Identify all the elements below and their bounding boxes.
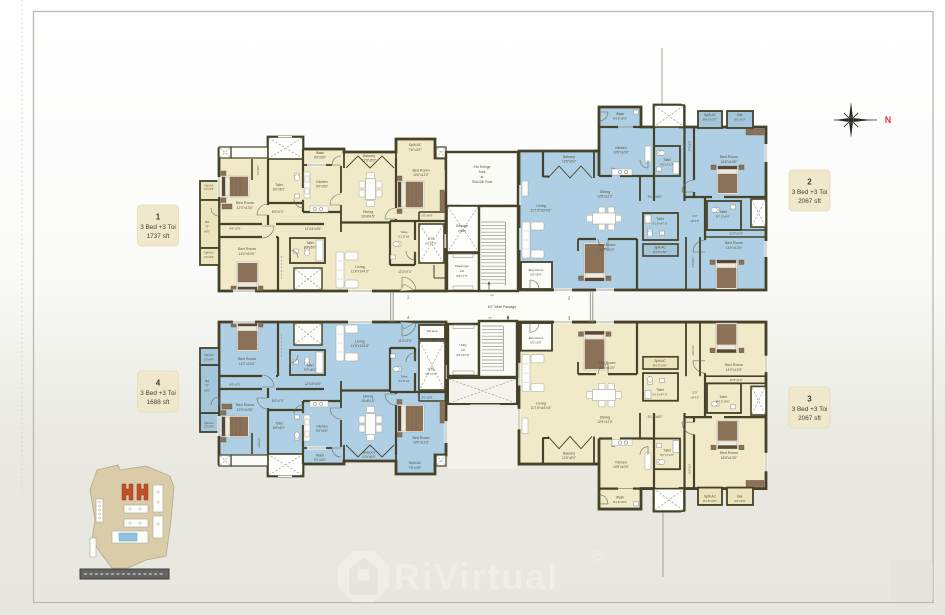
svg-text:Toilet: Toilet <box>719 395 727 399</box>
svg-text:Toilet: Toilet <box>663 448 671 452</box>
svg-text:Living: Living <box>536 204 545 208</box>
svg-text:12'9"x5'0": 12'9"x5'0" <box>562 456 576 460</box>
svg-text:9'0"x3'0": 9'0"x3'0" <box>314 458 326 462</box>
svg-text:Balcony: Balcony <box>363 154 375 158</box>
svg-text:Bed Room: Bed Room <box>238 247 256 251</box>
svg-text:9'0"x9'0": 9'0"x9'0" <box>316 185 328 189</box>
svg-text:Toilet: Toilet <box>663 158 671 162</box>
svg-text:8'4.5"x3'0": 8'4.5"x3'0" <box>703 118 717 122</box>
svg-text:12'4.5"x4'0": 12'4.5"x4'0" <box>305 227 322 231</box>
svg-text:Bar: Bar <box>737 113 743 117</box>
svg-text:12'0"x10'0": 12'0"x10'0" <box>599 248 615 252</box>
svg-text:2'0"x6'0": 2'0"x6'0" <box>691 257 695 268</box>
svg-text:12'0"x13'0": 12'0"x13'0" <box>237 206 255 210</box>
svg-text:4: 4 <box>156 379 161 388</box>
svg-text:8'7.5"x6'0": 8'7.5"x6'0" <box>716 215 730 219</box>
svg-text:12'0"x13'0": 12'0"x13'0" <box>237 408 255 412</box>
svg-text:Toilet: Toilet <box>656 388 664 392</box>
svg-text:Bed Room: Bed Room <box>236 201 254 205</box>
svg-text:14'0"x12'0": 14'0"x12'0" <box>726 246 744 250</box>
svg-text:3: 3 <box>807 395 812 404</box>
svg-text:x6'4.5": x6'4.5" <box>691 219 700 223</box>
svg-text:N: N <box>885 115 892 125</box>
svg-text:Elec.Room: Elec.Room <box>529 336 544 340</box>
svg-text:Split AC: Split AC <box>654 359 666 363</box>
svg-text:Lift: Lift <box>460 269 464 273</box>
svg-text:Bed Room: Bed Room <box>238 357 256 361</box>
svg-text:6'9"x7'3": 6'9"x7'3" <box>456 274 467 278</box>
svg-text:6'0"x7'3.5": 6'0"x7'3.5" <box>660 453 674 457</box>
svg-text:Fire Refuge: Fire Refuge <box>474 165 491 169</box>
svg-text:2'3"x4'9": 2'3"x4'9" <box>204 425 214 429</box>
svg-text:Bed Room: Bed Room <box>725 241 743 245</box>
svg-text:8'7.5"x6'0": 8'7.5"x6'0" <box>716 400 730 404</box>
svg-text:©: © <box>592 548 605 567</box>
svg-text:Split AC: Split AC <box>204 421 213 425</box>
svg-text:Toilet: Toilet <box>719 210 727 214</box>
svg-text:2'0"x6'0": 2'0"x6'0" <box>421 396 432 400</box>
svg-text:10'9"x10'0": 10'9"x10'0" <box>613 465 629 469</box>
svg-text:1: 1 <box>156 213 161 222</box>
svg-text:9'3"x5'0": 9'3"x5'0" <box>304 246 316 250</box>
svg-text:3'0": 3'0" <box>693 214 698 218</box>
svg-text:2'0"x6'0": 2'0"x6'0" <box>256 165 260 175</box>
svg-text:Toilet: Toilet <box>275 183 283 187</box>
svg-text:11'8"x14'4.5": 11'8"x14'4.5" <box>351 344 369 348</box>
svg-text:8'4.5"x3'0": 8'4.5"x3'0" <box>653 250 667 254</box>
svg-text:10'x8'4.5": 10'x8'4.5" <box>361 399 375 403</box>
svg-text:Elec.Room: Elec.Room <box>529 268 544 272</box>
svg-text:9'1.5"x5'0": 9'1.5"x5'0" <box>648 195 663 199</box>
svg-text:2: 2 <box>807 178 812 187</box>
svg-text:x6'0": x6'0" <box>204 230 210 234</box>
svg-text:12'9"x5'0": 12'9"x5'0" <box>562 160 576 164</box>
svg-text:9'1.5"x5'0": 9'1.5"x5'0" <box>648 415 663 419</box>
svg-text:Wet Area: Wet Area <box>427 329 438 333</box>
svg-text:2'0"x6'0": 2'0"x6'0" <box>257 438 261 448</box>
svg-text:Balcony: Balcony <box>563 451 575 455</box>
svg-text:2'0"x6'0": 2'0"x6'0" <box>688 141 692 152</box>
svg-text:Area: Area <box>479 170 486 174</box>
svg-text:9'1.0"x4'7.5": 9'1.0"x4'7.5" <box>652 222 667 226</box>
svg-text:Living: Living <box>355 265 364 269</box>
svg-text:14'2"x10'0": 14'2"x10'0" <box>239 362 257 366</box>
svg-text:14'2"x10'0": 14'2"x10'0" <box>239 252 257 256</box>
svg-text:11'7.5"x16'4.5": 11'7.5"x16'4.5" <box>531 209 552 213</box>
svg-text:7'6"x3'9": 7'6"x3'9" <box>409 466 423 470</box>
svg-text:Split AC: Split AC <box>409 143 422 147</box>
svg-text:12'9"x5'0": 12'9"x5'0" <box>362 159 376 163</box>
svg-text:1737 sft: 1737 sft <box>147 233 170 240</box>
svg-text:Bed Room: Bed Room <box>236 403 254 407</box>
svg-text:8'4.5"x3'0": 8'4.5"x3'0" <box>653 363 667 367</box>
svg-text:11'7.5"x16'4.5": 11'7.5"x16'4.5" <box>531 406 552 410</box>
svg-text:2'3"x4'9": 2'3"x4'9" <box>204 255 214 259</box>
svg-text:Wash: Wash <box>316 151 324 155</box>
svg-text:14'0"x12'0": 14'0"x12'0" <box>726 368 744 372</box>
svg-text:RiVirtual: RiVirtual <box>394 556 559 597</box>
svg-text:7'6"x3'9": 7'6"x3'9" <box>409 148 423 152</box>
svg-text:Toilet: Toilet <box>306 364 314 368</box>
svg-text:Kitchen: Kitchen <box>615 146 626 150</box>
svg-text:Balcony: Balcony <box>363 451 375 455</box>
svg-text:6'0"x3'0": 6'0"x3'0" <box>734 118 745 122</box>
svg-text:7'3": 7'3" <box>205 384 209 388</box>
svg-text:11'8"x14'4.5": 11'8"x14'4.5" <box>351 270 369 274</box>
svg-text:5'1.5"x8': 5'1.5"x8' <box>398 235 410 239</box>
svg-text:Bed Room: Bed Room <box>599 361 616 365</box>
svg-text:10'9"x10'0": 10'9"x10'0" <box>613 151 629 155</box>
svg-text:Bed Room: Bed Room <box>725 363 743 367</box>
svg-text:9'1.0"x4'7.5": 9'1.0"x4'7.5" <box>652 393 667 397</box>
svg-text:9'0"x3'0": 9'0"x3'0" <box>314 156 326 160</box>
svg-text:Toilet: Toilet <box>656 217 664 221</box>
svg-text:6'0" Wide Passage: 6'0" Wide Passage <box>488 305 517 309</box>
svg-text:12'9"x2'0": 12'9"x2'0" <box>729 232 742 236</box>
svg-text:Dining: Dining <box>363 210 373 214</box>
svg-text:12'9"x5'0": 12'9"x5'0" <box>362 455 376 459</box>
svg-text:Bed Room: Bed Room <box>599 243 616 247</box>
svg-text:Balcony: Balcony <box>563 155 575 159</box>
svg-text:6'0"x7'3": 6'0"x7'3" <box>272 210 284 214</box>
svg-text:2'0"x6'0": 2'0"x6'0" <box>688 464 692 475</box>
svg-text:at: at <box>481 175 484 179</box>
svg-text:6'0"x6'0": 6'0"x6'0" <box>273 426 285 430</box>
svg-text:Toilet: Toilet <box>306 241 314 245</box>
svg-text:11'3"x7'3": 11'3"x7'3" <box>398 339 412 343</box>
svg-text:1688 sft: 1688 sft <box>147 399 170 406</box>
svg-text:Toilet: Toilet <box>400 230 407 234</box>
svg-text:5'0"x7'3": 5'0"x7'3" <box>425 372 436 376</box>
svg-text:Living: Living <box>536 401 545 405</box>
svg-text:Toilet: Toilet <box>275 422 283 426</box>
svg-text:8'4.5"x5'3": 8'4.5"x5'3" <box>613 500 627 504</box>
svg-text:Split AC: Split AC <box>704 494 717 498</box>
svg-text:6'0"x6'0": 6'0"x6'0" <box>273 188 285 192</box>
svg-text:Split AC: Split AC <box>704 113 717 117</box>
svg-text:3 Bed +3 Toi: 3 Bed +3 Toi <box>140 224 176 231</box>
svg-text:Dining: Dining <box>600 190 610 194</box>
svg-text:10'0"x12'0": 10'0"x12'0" <box>413 173 429 177</box>
svg-text:Dining: Dining <box>600 416 610 420</box>
svg-text:7'3": 7'3" <box>205 225 209 229</box>
svg-text:12'9"x2'0": 12'9"x2'0" <box>729 378 742 382</box>
svg-text:Bar: Bar <box>737 494 743 498</box>
svg-text:Garbage: Garbage <box>456 224 469 228</box>
svg-text:Passenger: Passenger <box>455 264 469 268</box>
svg-text:Living: Living <box>355 340 364 344</box>
svg-text:3 Bed +3 Toi: 3 Bed +3 Toi <box>792 189 828 196</box>
svg-text:12'9"x11'0": 12'9"x11'0" <box>597 195 612 199</box>
svg-text:Bed Room: Bed Room <box>720 451 738 455</box>
svg-text:12'4.5"x4'0": 12'4.5"x4'0" <box>305 382 322 386</box>
svg-text:9'0"x9'0": 9'0"x9'0" <box>316 429 328 433</box>
svg-text:3'0": 3'0" <box>693 391 698 395</box>
svg-text:5'1.5"x8': 5'1.5"x8' <box>398 379 410 383</box>
svg-text:Bed Room: Bed Room <box>413 169 430 173</box>
svg-text:6'0"x7'3": 6'0"x7'3" <box>272 399 284 403</box>
svg-text:Dining: Dining <box>363 395 373 399</box>
svg-text:Split AC: Split AC <box>409 461 422 465</box>
svg-text:Bed Room: Bed Room <box>413 436 430 440</box>
svg-text:8'4.5"x3'0": 8'4.5"x3'0" <box>703 499 717 503</box>
svg-text:OTS: OTS <box>428 368 435 372</box>
svg-text:9'3"x5'0": 9'3"x5'0" <box>304 368 316 372</box>
svg-text:2067 sft: 2067 sft <box>798 198 821 205</box>
svg-text:6'0"x7'3.5": 6'0"x7'3.5" <box>660 163 674 167</box>
svg-text:Wash: Wash <box>616 112 624 116</box>
svg-text:11'3"x7'3": 11'3"x7'3" <box>398 270 412 274</box>
svg-text:10'0"x12'0": 10'0"x12'0" <box>413 441 429 445</box>
svg-text:15'6"x13'0": 15'6"x13'0" <box>721 456 739 460</box>
svg-text:Split AC: Split AC <box>204 353 213 357</box>
svg-text:6'6"x2'0": 6'6"x2'0" <box>229 383 240 387</box>
svg-text:Lift: Lift <box>461 348 465 352</box>
svg-text:chute: chute <box>458 229 466 233</box>
svg-text:Wash: Wash <box>616 495 624 499</box>
svg-text:Utility: Utility <box>459 343 467 347</box>
svg-text:2'0"x6'0": 2'0"x6'0" <box>691 345 695 356</box>
svg-text:Kitchen: Kitchen <box>615 461 626 465</box>
svg-text:Toilet: Toilet <box>400 375 407 379</box>
svg-text:Bed Room: Bed Room <box>720 155 738 159</box>
svg-text:6'9"x10'0": 6'9"x10'0" <box>456 353 469 357</box>
svg-text:2067 sft: 2067 sft <box>798 415 821 422</box>
svg-text:3 Bed +3 Toi: 3 Bed +3 Toi <box>792 406 828 413</box>
svg-text:8'4.5"x5'3": 8'4.5"x5'3" <box>613 117 627 121</box>
svg-text:Split AC: Split AC <box>204 251 213 255</box>
svg-text:10'x8'4.5": 10'x8'4.5" <box>361 215 375 219</box>
svg-text:x6'0": x6'0" <box>204 389 210 393</box>
svg-text:OTS: OTS <box>428 237 435 241</box>
svg-text:Wash: Wash <box>316 454 324 458</box>
svg-text:5'0"x7'3": 5'0"x7'3" <box>425 242 436 246</box>
svg-text:Bal: Bal <box>205 379 209 383</box>
svg-text:7th&12th Floor: 7th&12th Floor <box>472 180 494 184</box>
svg-text:2'0"x6'0": 2'0"x6'0" <box>421 214 432 218</box>
svg-text:6'6"x2'0": 6'6"x2'0" <box>229 227 240 231</box>
svg-text:3 Bed +3 Toi: 3 Bed +3 Toi <box>140 390 176 397</box>
svg-text:2'3"x4'9": 2'3"x4'9" <box>204 358 214 362</box>
svg-text:6'0"x5'0": 6'0"x5'0" <box>530 273 541 277</box>
svg-text:12'0"x10'0": 12'0"x10'0" <box>599 366 615 370</box>
svg-text:2'3"x4'9": 2'3"x4'9" <box>204 187 214 191</box>
svg-text:Split AC: Split AC <box>204 184 213 188</box>
svg-text:6'0"x3'0": 6'0"x3'0" <box>734 499 745 503</box>
svg-text:15'6"x13'0": 15'6"x13'0" <box>721 160 739 164</box>
svg-text:Kitchen: Kitchen <box>316 180 327 184</box>
svg-text:Kitchen: Kitchen <box>316 425 327 429</box>
svg-text:Bal: Bal <box>205 220 209 224</box>
svg-text:12'9"x11'0": 12'9"x11'0" <box>597 420 612 424</box>
svg-text:6'0"x5'0": 6'0"x5'0" <box>530 340 541 344</box>
svg-text:x6'4.5": x6'4.5" <box>691 396 700 400</box>
svg-text:Split AC: Split AC <box>654 246 666 250</box>
